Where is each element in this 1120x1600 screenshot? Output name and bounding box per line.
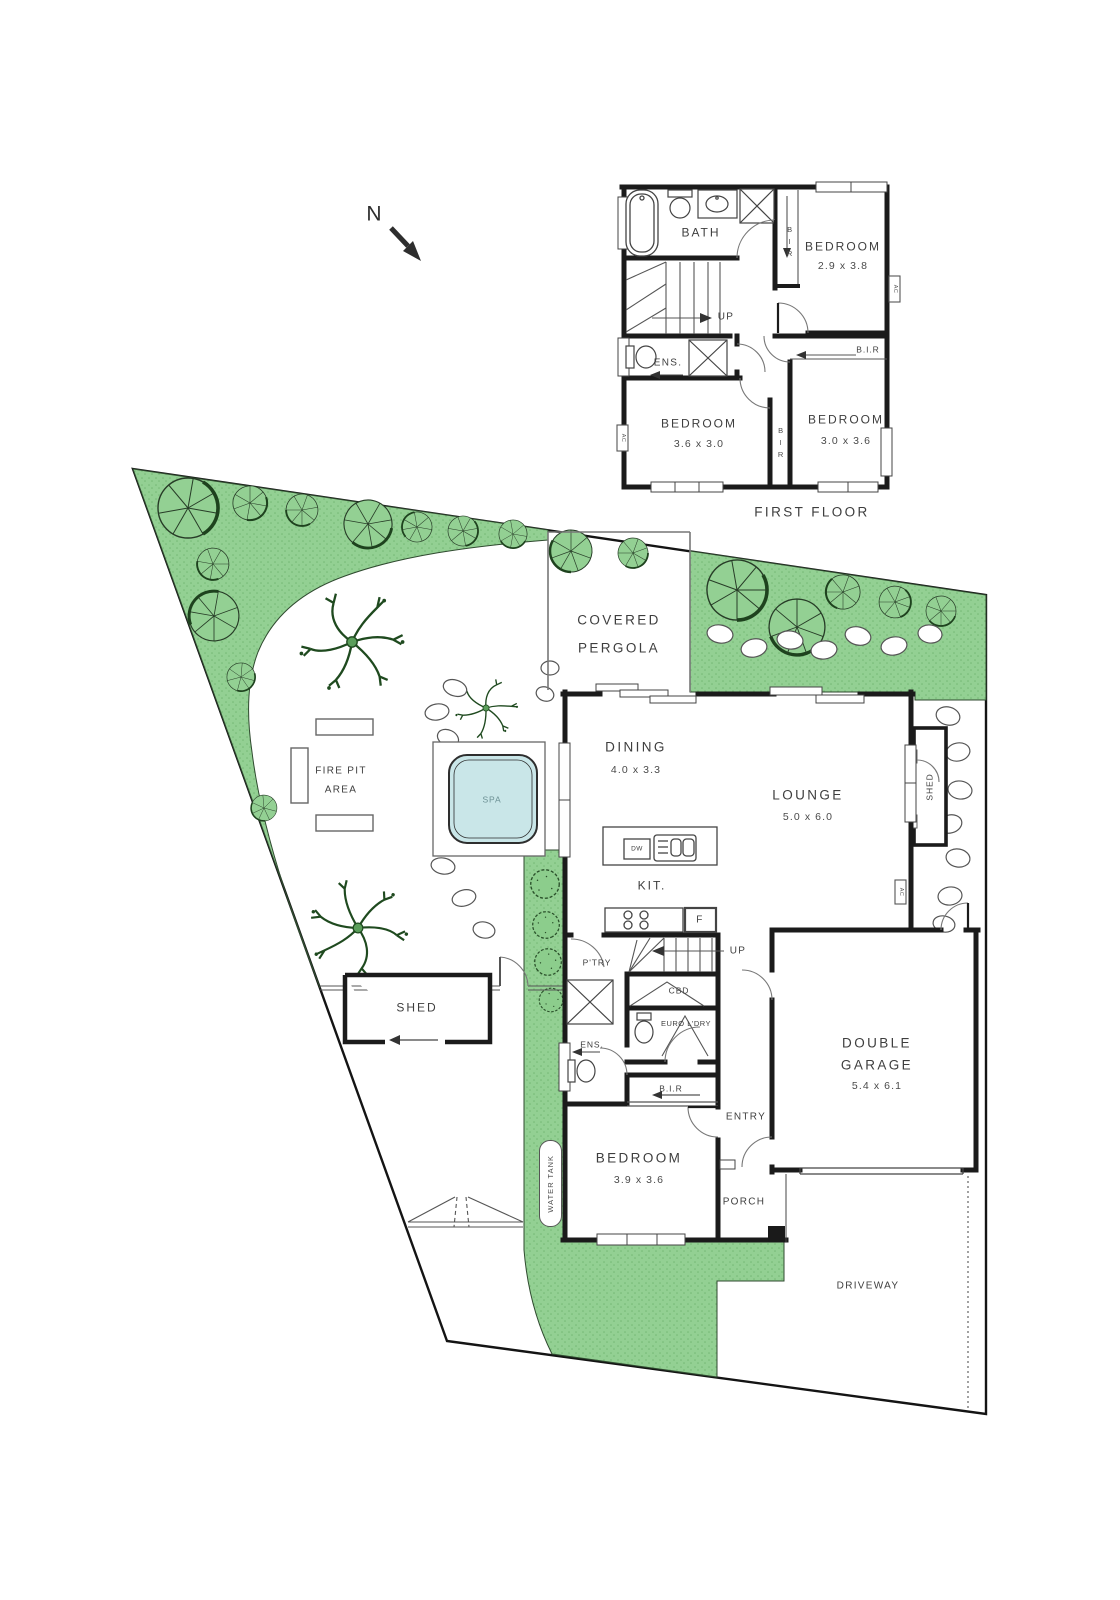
- kitchen-label: KIT.: [638, 879, 667, 892]
- ff-bath-label: BATH: [681, 226, 720, 239]
- cbd-label: CBD: [669, 986, 690, 995]
- driveway-label: DRIVEWAY: [837, 1281, 900, 1292]
- ff-bedroom-top-dims: 2.9 x 3.8: [818, 261, 868, 273]
- ff-bedroom-top-label: BEDROOM: [805, 240, 881, 253]
- ff-bir-mid-label: BIR: [776, 426, 784, 462]
- bedroom-ground-dims: 3.9 x 3.6: [614, 1175, 664, 1187]
- bath-vanity: [698, 190, 737, 218]
- porch-post: [768, 1226, 785, 1242]
- ac-ground-label: AC: [898, 888, 904, 896]
- ff-ens-label: ENS.: [654, 358, 683, 369]
- kitchen-island: [603, 827, 717, 865]
- water-tank-label: WATER TANK: [546, 1155, 555, 1213]
- water-tank: WATER TANK: [539, 1140, 562, 1227]
- pergola-label-2: PERGOLA: [578, 642, 660, 657]
- bath-shower: [740, 189, 774, 223]
- bathtub: [626, 190, 658, 256]
- first-floor-title: FIRST FLOOR: [754, 506, 869, 521]
- bedroom-ground-label: BEDROOM: [596, 1152, 683, 1167]
- ff-stairs: [626, 262, 720, 334]
- north-arrow-icon: [391, 228, 421, 261]
- dishwasher-label: DW: [631, 845, 643, 852]
- ff-bedroom-right-label: BEDROOM: [808, 413, 884, 426]
- ens-ground-label: ENS.: [580, 1040, 603, 1049]
- shed-right-label: SHED: [925, 773, 934, 800]
- ff-bir-robe-label: B.I.R: [856, 345, 879, 354]
- fire-pit-label-1: FIRE PIT: [315, 766, 367, 777]
- lounge-label: LOUNGE: [772, 789, 843, 804]
- lounge-dims: 5.0 x 6.0: [783, 812, 833, 824]
- ff-bir-arrow-left: [796, 351, 806, 359]
- garage-label-1: DOUBLE: [842, 1037, 912, 1052]
- ff-bedroom-right-dims: 3.0 x 3.6: [821, 436, 871, 448]
- floorplan-drawing: [0, 0, 1120, 1600]
- ff-up-arrow: [700, 313, 712, 323]
- ground-up-label: UP: [730, 946, 747, 957]
- ff-ac-right-label: AC: [892, 285, 898, 293]
- shed-left-label: SHED: [396, 1001, 437, 1014]
- garage-label-2: GARAGE: [841, 1059, 913, 1074]
- bir-ground-label: B.I.R: [659, 1084, 682, 1093]
- laundry-label: EURO L'DRY: [661, 1020, 711, 1028]
- ff-up-label: UP: [718, 312, 735, 323]
- ff-bedroom-left-label: BEDROOM: [661, 417, 737, 430]
- porch-label: PORCH: [723, 1197, 766, 1208]
- ff-bir-closet-label: BIR: [785, 225, 793, 261]
- fire-pit-label-2: AREA: [325, 785, 357, 796]
- wc-toilet: [635, 1013, 653, 1043]
- dining-dims: 4.0 x 3.3: [611, 765, 661, 777]
- floorplan-page: N BATH BEDROOM 2.9 x 3.8 BIR B.I.R ENS. …: [0, 0, 1120, 1600]
- fridge-label: F: [696, 915, 703, 926]
- pergola-label-1: COVERED: [577, 614, 661, 629]
- garage-dims: 5.4 x 6.1: [852, 1081, 902, 1093]
- dining-label: DINING: [605, 741, 667, 756]
- entry-label: ENTRY: [726, 1112, 766, 1123]
- pantry-label: P'TRY: [583, 958, 612, 967]
- ff-ac-left-label: AC: [620, 434, 626, 442]
- bath-toilet: [668, 190, 692, 218]
- spa-label: SPA: [482, 795, 501, 804]
- ff-bedroom-left-dims: 3.6 x 3.0: [674, 439, 724, 451]
- north-label: N: [366, 202, 381, 225]
